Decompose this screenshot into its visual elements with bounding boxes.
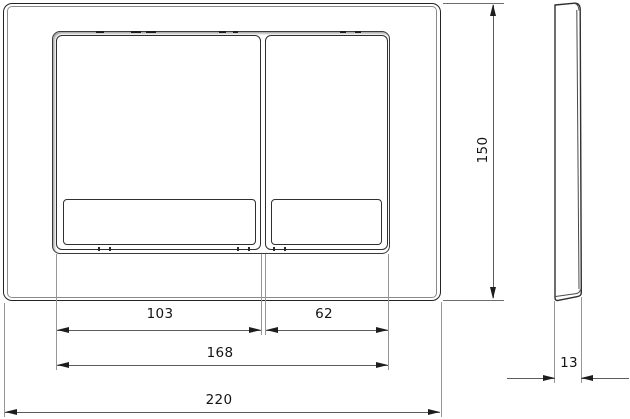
technical-drawing-canvas: 150 103 62 168 220 bbox=[0, 0, 630, 419]
extension-line bbox=[56, 254, 57, 370]
dimension-value-220: 220 bbox=[206, 393, 233, 407]
clip-mark bbox=[131, 31, 141, 33]
arrow-down-icon bbox=[490, 287, 496, 299]
dimension-line bbox=[266, 330, 388, 331]
clip-tick bbox=[98, 247, 100, 251]
extension-line bbox=[443, 300, 504, 301]
dimension-line bbox=[493, 5, 494, 298]
dimension-line bbox=[57, 330, 261, 331]
clip-mark bbox=[233, 31, 238, 33]
dimension-line bbox=[57, 365, 388, 366]
extension-line bbox=[388, 254, 389, 370]
clip-tick bbox=[248, 247, 250, 251]
clip-mark bbox=[96, 31, 104, 33]
arrow-right-icon bbox=[428, 409, 440, 415]
dimension-value-13: 13 bbox=[560, 356, 578, 370]
clip-mark bbox=[219, 31, 226, 33]
arrow-left-icon bbox=[57, 362, 69, 368]
arrow-left-icon bbox=[581, 375, 593, 381]
arrow-left-icon bbox=[57, 327, 69, 333]
extension-line bbox=[554, 301, 555, 383]
dimension-value-168: 168 bbox=[207, 346, 234, 360]
arrow-right-icon bbox=[543, 375, 555, 381]
arrow-left-icon bbox=[266, 327, 278, 333]
arrow-right-icon bbox=[376, 327, 388, 333]
dimension-value-103: 103 bbox=[147, 307, 174, 321]
arrow-right-icon bbox=[249, 327, 261, 333]
extension-line bbox=[441, 302, 442, 417]
clip-tick bbox=[237, 247, 239, 251]
clip-tick bbox=[284, 247, 286, 251]
extension-line bbox=[261, 254, 262, 335]
extension-line bbox=[265, 254, 266, 335]
dimension-value-62: 62 bbox=[315, 307, 333, 321]
dimension-value-150: 150 bbox=[476, 137, 490, 164]
extension-line bbox=[581, 297, 582, 383]
extension-line bbox=[4, 303, 5, 417]
dimension-line bbox=[5, 412, 440, 413]
clip-tick bbox=[273, 247, 275, 251]
clip-mark bbox=[146, 31, 156, 33]
clip-mark bbox=[355, 31, 361, 33]
side-profile-bottom-edge bbox=[556, 290, 581, 297]
arrow-right-icon bbox=[376, 362, 388, 368]
clip-tick bbox=[109, 247, 111, 251]
clip-mark bbox=[340, 31, 346, 33]
flush-button-small-pad bbox=[271, 199, 382, 245]
side-profile-inner-edge bbox=[577, 10, 579, 289]
arrow-left-icon bbox=[5, 409, 17, 415]
side-view bbox=[548, 0, 630, 310]
flush-button-large-pad bbox=[63, 199, 256, 245]
arrow-up-icon bbox=[490, 4, 496, 16]
